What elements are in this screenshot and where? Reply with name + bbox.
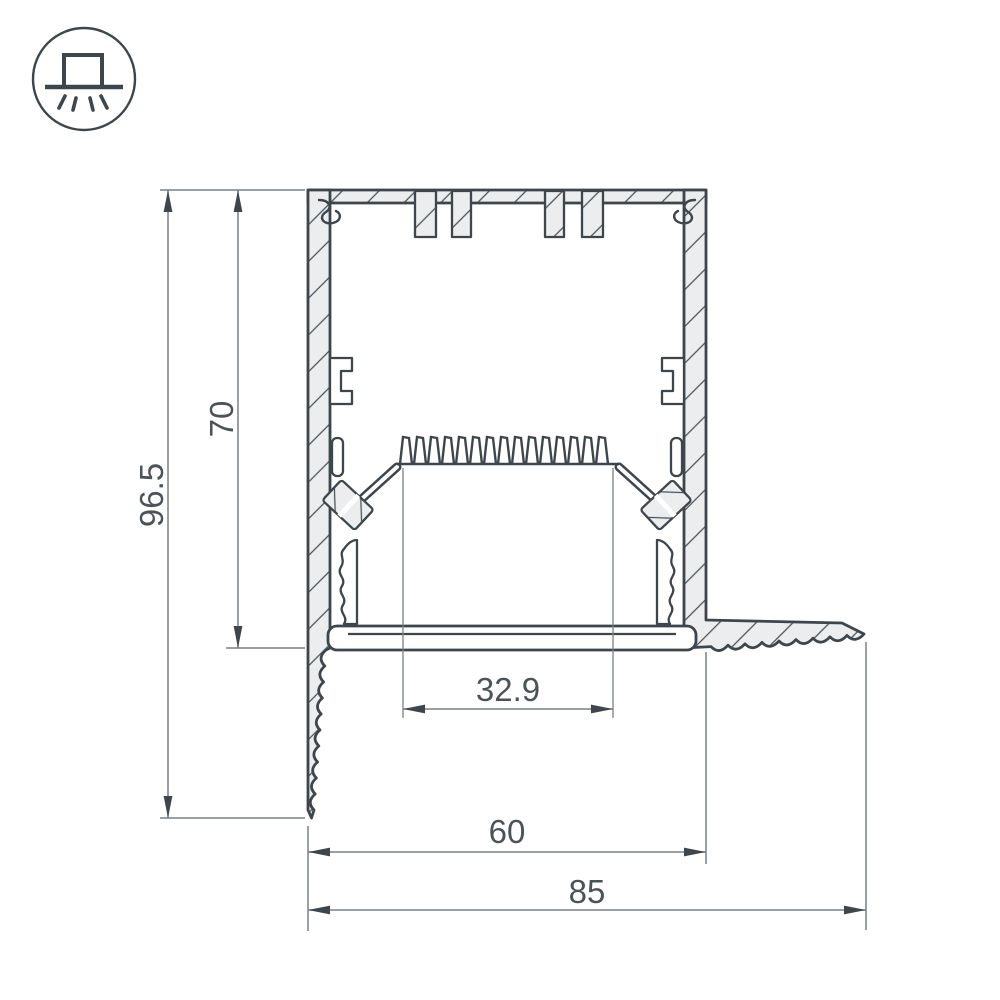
diffuser-tray	[328, 626, 696, 650]
icon-circle	[33, 28, 135, 130]
heatsink	[322, 437, 691, 530]
icon-luminaire-box	[64, 55, 102, 87]
diffuser-clip-right	[657, 540, 674, 624]
support-tab-left	[332, 438, 343, 476]
dimensions: 96.5 70 32.9 60 85	[133, 190, 866, 931]
right-wall-with-flange	[684, 190, 864, 651]
dimension-label: 96.5	[133, 463, 170, 527]
top-plate	[308, 190, 706, 203]
drawing-canvas: 96.5 70 32.9 60 85	[0, 0, 1000, 1000]
dimension-led-window-width: 32.9	[403, 671, 613, 709]
heatsink-fins	[400, 437, 608, 464]
profile-cross-section	[308, 190, 864, 818]
dimension-inner-height: 70	[203, 190, 240, 648]
diffuser-clip-left	[340, 540, 357, 624]
accessory-groove-left	[330, 358, 352, 404]
dimension-label: 85	[569, 873, 606, 910]
surface-mount-light-icon	[33, 28, 135, 130]
dimension-body-width: 60	[308, 813, 706, 852]
dimension-label: 32.9	[476, 671, 540, 708]
dimension-label: 60	[489, 813, 526, 850]
support-tab-right	[671, 438, 682, 476]
icon-light-rays	[59, 96, 107, 110]
technical-drawing-page: 96.5 70 32.9 60 85	[0, 0, 1000, 1000]
bottom-plate	[328, 626, 696, 650]
dimension-overall-height: 96.5	[133, 190, 170, 818]
dimension-overall-width: 85	[308, 873, 866, 910]
dimension-label: 70	[203, 401, 240, 438]
accessory-groove-right	[662, 358, 684, 404]
